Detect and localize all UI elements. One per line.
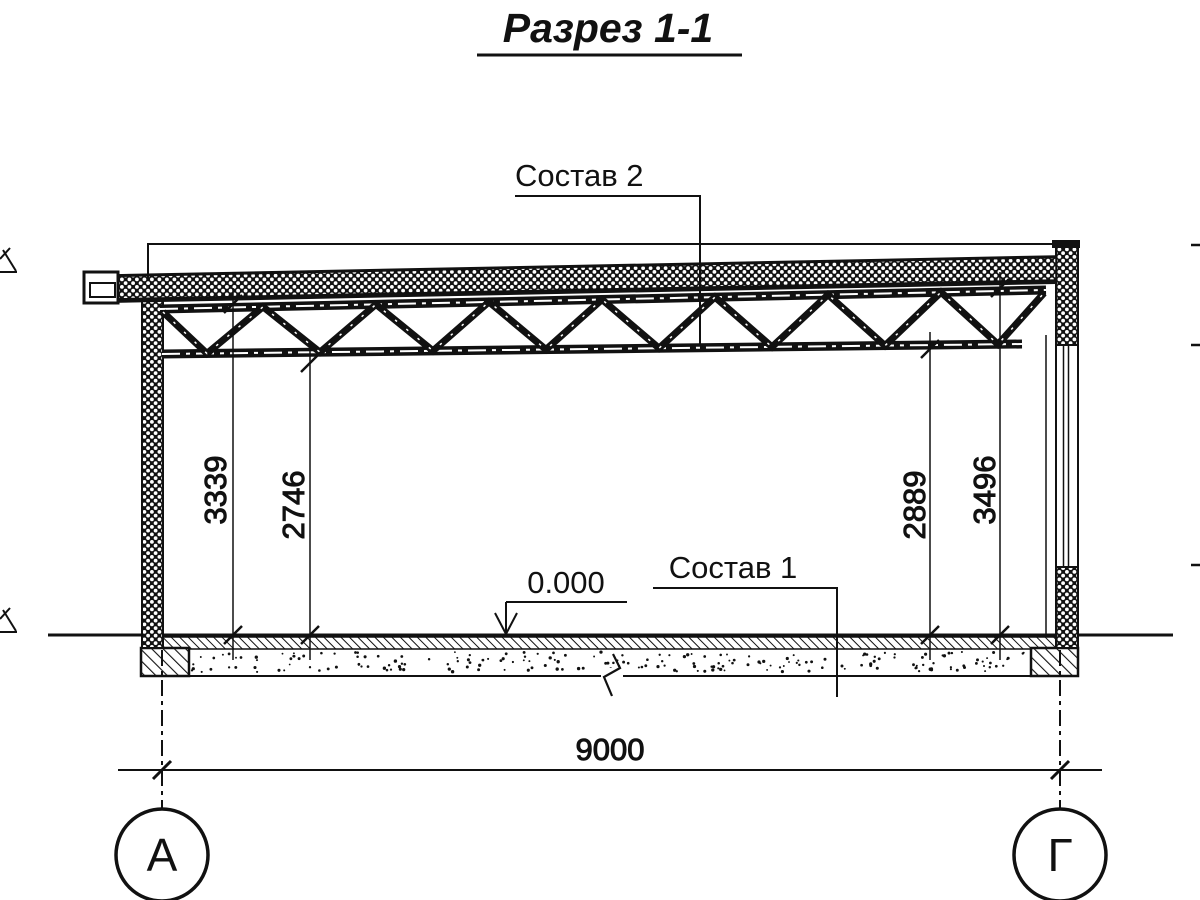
soil-dot [401, 663, 403, 665]
soil-dot [697, 670, 699, 672]
soil-dot [717, 667, 719, 669]
roof-composition-label: Состав 2 [515, 158, 644, 193]
dim-text-left-inner: 2746 [276, 471, 311, 540]
soil-dot [807, 670, 810, 673]
soil-dot [358, 663, 361, 666]
soil-dot [663, 664, 665, 666]
soil-dot [454, 651, 456, 653]
soil-dot [912, 663, 915, 666]
soil-dot [621, 654, 623, 656]
soil-dot [523, 659, 525, 661]
truss [160, 290, 1046, 354]
soil-dot [693, 665, 696, 668]
soil-dot [524, 655, 526, 657]
soil-dot [282, 653, 284, 655]
soil-dot [481, 659, 483, 661]
zero-level-arrow-right [506, 613, 517, 634]
soil-dot [788, 661, 790, 663]
soil-dot [661, 660, 663, 662]
soil-dot [228, 653, 231, 656]
soil-dot [240, 656, 243, 659]
span-dim-text: 9000 [576, 732, 645, 767]
soil-dot [612, 662, 615, 665]
soil-dot [793, 654, 795, 656]
soil-dot [456, 657, 458, 659]
soil-dot [862, 654, 864, 656]
soil-dot [783, 665, 785, 667]
dim-text-right-inner: 2889 [897, 471, 932, 540]
soil-dot [561, 668, 564, 671]
soil-dot [874, 656, 876, 658]
soil-dot [469, 654, 471, 656]
soil-dot [924, 653, 926, 655]
soil-dot [711, 668, 714, 671]
soil-dot [201, 671, 203, 673]
soil-dot [505, 652, 508, 655]
soil-dot [327, 667, 330, 670]
soil-dot [1007, 657, 1010, 660]
soil-dot [209, 668, 212, 671]
soil-dot [564, 654, 567, 657]
soil-dot [428, 658, 430, 660]
soil-dot [577, 667, 580, 670]
soil-dot [466, 666, 469, 669]
soil-dot [298, 657, 301, 660]
soil-dot [786, 657, 789, 660]
soil-dot [386, 669, 389, 672]
soil-dot [289, 664, 291, 666]
left-wall [142, 299, 163, 648]
title-text: Разрез 1-1 [503, 5, 714, 51]
drawing-title: Разрез 1-1 [477, 5, 742, 55]
soil-dot [989, 666, 991, 668]
soil-dot [686, 653, 689, 656]
soil-dot [646, 658, 649, 661]
soil-dot [951, 652, 953, 654]
eave-fascia-inner [90, 283, 115, 297]
parapet-hatch [1056, 247, 1078, 345]
soil-dot [292, 655, 295, 658]
soil-dot [390, 669, 392, 671]
soil-dot [192, 667, 195, 670]
soil-dot [986, 657, 988, 659]
level-mark-top-left [0, 248, 17, 272]
soil-dot [502, 657, 505, 660]
soil-dot [504, 669, 506, 671]
soil-dot [703, 670, 706, 673]
soil-dot [932, 662, 934, 664]
soil-dot [876, 667, 879, 670]
soil-dot [256, 671, 258, 673]
soil-dot [759, 662, 761, 664]
soil-dot [982, 661, 984, 663]
soil-dot [356, 656, 359, 659]
floor-composition-callout: Состав 1 [653, 550, 837, 697]
dim-text-left-outer: 3339 [198, 456, 233, 525]
soil-dot [983, 665, 985, 667]
right-wall [1046, 240, 1080, 648]
soil-dot [293, 652, 295, 654]
soil-dot [641, 666, 644, 669]
window-opening [1056, 345, 1078, 567]
soil-dot [733, 659, 736, 662]
soil-dot [948, 652, 951, 655]
foundation-right [1031, 648, 1078, 676]
soil-dot [724, 669, 726, 671]
soil-dot [383, 667, 386, 670]
soil-dot [719, 668, 722, 671]
soil-dot [950, 666, 952, 668]
zero-level-arrow-left [495, 613, 506, 634]
soil-dot [821, 666, 824, 669]
soil-dot [691, 653, 693, 655]
level-mark-bottom-left [0, 608, 17, 632]
soil-dot [499, 659, 502, 662]
soil-dot [873, 660, 876, 663]
soil-dot [192, 663, 194, 665]
soil-dot [487, 658, 489, 660]
soil-dot [283, 669, 285, 671]
soil-dot [659, 654, 661, 656]
foundation-left [141, 648, 189, 676]
soil-dot [893, 656, 895, 658]
soil-dot [869, 664, 872, 667]
zero-level-mark: 0.000 [495, 565, 627, 634]
soil-dot [320, 652, 323, 655]
soil-dot [604, 662, 607, 665]
section-drawing: Разрез 1-1 [0, 0, 1200, 900]
soil-dot [451, 670, 454, 673]
soil-dot [766, 669, 768, 671]
soil-dot [916, 665, 918, 667]
soil-dot [399, 668, 402, 671]
soil-dot [656, 665, 659, 668]
soil-dot [448, 667, 451, 670]
soil-dot [798, 664, 800, 666]
soil-dot [552, 652, 555, 655]
soil-dot [531, 666, 534, 669]
soil-dot [961, 651, 963, 653]
soil-dot [554, 659, 556, 661]
soil-dot [717, 662, 720, 665]
soil-dot [976, 658, 979, 661]
soil-dot [544, 664, 547, 667]
soil-dot [703, 655, 706, 658]
soil-dot [364, 655, 367, 658]
soil-dot [402, 668, 405, 671]
soil-dot [918, 670, 920, 672]
axis-markers: А Г [116, 650, 1106, 900]
soil-dot [557, 660, 560, 663]
soil-dot [638, 666, 640, 668]
soil-dot [731, 662, 734, 665]
span-dimension: 9000 [118, 732, 1102, 779]
soil-dot [388, 664, 390, 666]
soil-dot [469, 661, 472, 664]
soil-dot [400, 655, 403, 658]
soil-dot [457, 660, 459, 662]
soil-dot [593, 656, 595, 658]
soil-dot [335, 666, 338, 669]
soil-dot [824, 658, 827, 661]
axis-label-left: А [147, 829, 178, 881]
soil-dot [984, 670, 986, 672]
soil-dot [921, 656, 924, 659]
soil-dot [844, 668, 846, 670]
soil-dot [748, 655, 750, 657]
soil-dot [975, 662, 978, 665]
soil-dot [956, 669, 959, 672]
soil-dot [222, 654, 224, 656]
soil-dot [622, 661, 625, 664]
soil-dot [333, 652, 335, 654]
soil-dot [722, 665, 725, 668]
soil-dot [556, 667, 559, 670]
soil-dot [354, 651, 357, 654]
soil-dot [796, 662, 798, 664]
soil-dot [989, 662, 992, 665]
axis-label-right: Г [1048, 829, 1073, 881]
left-wall-hatch [142, 299, 163, 648]
soil-dot [995, 665, 998, 668]
soil-dot [644, 664, 647, 667]
soil-dot [253, 666, 256, 669]
soil-dot [302, 655, 305, 658]
soil-dot [719, 654, 722, 657]
soil-dot [234, 666, 237, 669]
soil-dot [377, 655, 380, 658]
soil-dot [878, 657, 881, 660]
soil-dot [289, 657, 292, 660]
soil-dot [676, 670, 678, 672]
soil-dot [627, 662, 630, 665]
soil-dot [212, 657, 215, 660]
floor-composition-label: Состав 1 [669, 550, 798, 585]
soil-dot [447, 663, 449, 665]
soil-dot [992, 651, 995, 654]
soil-dot [527, 669, 530, 672]
soil-dot [235, 657, 237, 659]
soil-dot [860, 664, 863, 667]
soil-dot [728, 660, 730, 662]
soil-dot [582, 667, 585, 670]
soil-dot [781, 670, 784, 673]
dim-text-right-outer: 3496 [967, 456, 1002, 525]
right-wall-lower-hatch [1056, 567, 1078, 648]
soil-dot [549, 656, 552, 659]
soil-dot [309, 666, 311, 668]
soil-dot [894, 653, 896, 655]
soil-dot [367, 665, 370, 668]
soil-dot [950, 668, 952, 670]
soil-dot [200, 656, 202, 658]
soil-dot [537, 653, 539, 655]
soil-dot [1002, 665, 1004, 667]
soil-dot [683, 655, 686, 658]
soil-dot [478, 664, 481, 667]
soil-dot [805, 661, 808, 664]
soil-dot [726, 654, 728, 656]
soil-dot [914, 667, 916, 669]
soil-dot [523, 651, 526, 654]
soil-dot [922, 664, 924, 666]
soil-dot [747, 663, 750, 666]
soil-dot [712, 665, 715, 668]
floor-slab [48, 635, 1173, 696]
soil-dot [770, 665, 772, 667]
soil-dot [668, 654, 670, 656]
zero-level-text: 0.000 [527, 565, 605, 600]
soil-dot [394, 659, 397, 662]
soil-dot [779, 666, 781, 668]
roof-composition-callout: Состав 2 [515, 158, 700, 345]
soil-dot [884, 652, 886, 654]
soil-dot [360, 665, 362, 667]
soil-dot [841, 665, 844, 668]
soil-dot [762, 660, 765, 663]
soil-dot [930, 667, 933, 670]
soil-dot [797, 659, 799, 661]
soil-dot [512, 661, 514, 663]
soil-dot [277, 669, 280, 672]
soil-dot [692, 662, 695, 665]
soil-dot [477, 668, 480, 671]
soil-dot [318, 669, 321, 672]
soil-dot [810, 660, 813, 663]
soil-dot [963, 666, 966, 669]
soil-dot [403, 663, 406, 666]
soil-dot [255, 656, 258, 659]
soil-dot [467, 658, 470, 661]
soil-dot [942, 654, 944, 656]
soil-dot [1023, 652, 1025, 654]
soil-dot [528, 660, 530, 662]
soil-dot [228, 666, 230, 668]
soil-dot [256, 659, 258, 661]
soil-dot [599, 650, 602, 653]
